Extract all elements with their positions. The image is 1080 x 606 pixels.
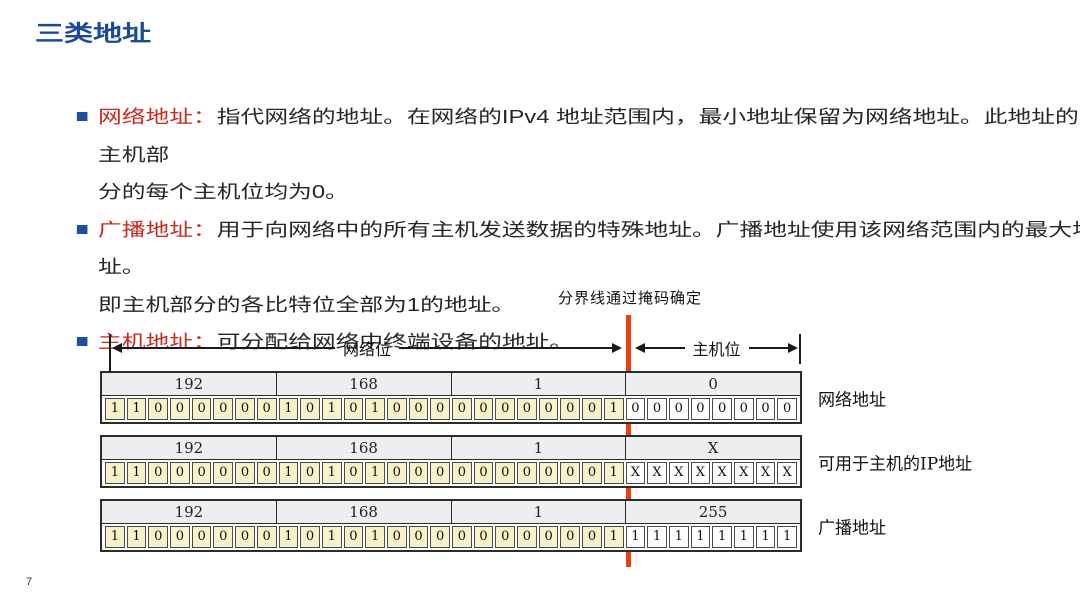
bit-cell: 0 (430, 462, 450, 484)
bit-cell: 0 (344, 462, 364, 484)
bit-cell: 0 (344, 398, 364, 420)
bit-cell: X (734, 462, 754, 484)
octet-value: 1 (452, 437, 627, 459)
address-row: 1921681X110000001010100000000001XXXXXXXX… (100, 435, 802, 488)
bit-cell: 0 (300, 526, 320, 548)
bit-cell: 0 (734, 398, 754, 420)
range-tick-left (109, 334, 111, 372)
arrowhead-left-icon (635, 343, 645, 353)
bit-cell: 0 (560, 526, 580, 548)
bit-cell: 1 (365, 526, 385, 548)
bit-cell: X (756, 462, 776, 484)
bit-cell: 0 (257, 526, 277, 548)
octet-value: 168 (277, 437, 452, 459)
octet-value: 255 (626, 501, 800, 523)
bit-cell: 0 (495, 398, 515, 420)
bit-cell: 0 (517, 398, 537, 420)
bit-cell: 0 (192, 462, 212, 484)
bit-cell: 0 (517, 462, 537, 484)
slide: 三类地址 网络地址：指代网络的地址。在网络的IPv4 地址范围内，最小地址保留为… (0, 0, 1080, 606)
bit-cell: 0 (430, 526, 450, 548)
bit-cell: 1 (105, 398, 125, 420)
bit-cell: 0 (582, 526, 602, 548)
bit-cell: 1 (669, 526, 689, 548)
bit-cell: 1 (365, 462, 385, 484)
bit-cell: 0 (409, 398, 429, 420)
bit-cell: X (669, 462, 689, 484)
host-bits-label: 主机位 (685, 336, 749, 360)
bit-cell: 0 (582, 462, 602, 484)
row-label: 可用于主机的IP地址 (818, 449, 972, 474)
bit-cell: 0 (300, 398, 320, 420)
bit-cell: 1 (322, 462, 342, 484)
bit-cell: 1 (127, 398, 147, 420)
bit-cell: 1 (279, 526, 299, 548)
bit-cell: 1 (626, 526, 646, 548)
address-rows: 1921681011000000101010000000000100000000… (100, 371, 802, 563)
bit-cell: 1 (604, 462, 624, 484)
bit-cell: 0 (539, 526, 559, 548)
address-row: 1921681255110000001010100000000001111111… (100, 499, 802, 552)
bit-cell: 0 (213, 462, 233, 484)
address-row: 1921681011000000101010000000000100000000… (100, 371, 802, 424)
octet-value: 168 (277, 501, 452, 523)
bit-cell: 1 (734, 526, 754, 548)
network-bits-arrow: 网络位 (112, 339, 622, 357)
bullet-term: 网络地址： (98, 107, 217, 127)
bit-cell: 1 (127, 526, 147, 548)
bit-cell: 1 (604, 398, 624, 420)
bullet-square-icon (77, 225, 88, 234)
bit-cell: 0 (192, 398, 212, 420)
bit-cell: 0 (560, 462, 580, 484)
bit-cell: 0 (517, 526, 537, 548)
host-bits-arrow: 主机位 (635, 339, 798, 357)
bit-cell: 0 (474, 398, 494, 420)
bit-cell: 1 (127, 462, 147, 484)
bit-cell: 0 (691, 398, 711, 420)
bit-cell: 0 (213, 398, 233, 420)
bit-cell: 0 (560, 398, 580, 420)
bit-cell: 0 (777, 398, 797, 420)
network-bits-label: 网络位 (335, 336, 399, 360)
octet-value: X (626, 437, 800, 459)
octet-value: 0 (626, 373, 800, 395)
bit-cell: 0 (669, 398, 689, 420)
bit-cell: 1 (756, 526, 776, 548)
bit-cell: 0 (300, 462, 320, 484)
octet-value: 192 (102, 437, 277, 459)
bit-cell: X (777, 462, 797, 484)
bit-cell: 0 (387, 526, 407, 548)
bit-cell: X (626, 462, 646, 484)
bit-cell: 0 (148, 526, 168, 548)
bullet-text: 指代网络的地址。在网络的IPv4 地址范围内，最小地址保留为网络地址。此地址的主… (98, 107, 1079, 202)
bit-cell: X (647, 462, 667, 484)
bit-cell: 0 (452, 462, 472, 484)
page-number: 7 (26, 576, 32, 588)
bullet-list: 网络地址：指代网络的地址。在网络的IPv4 地址范围内，最小地址保留为网络地址。… (98, 99, 1080, 362)
bit-cell: 0 (344, 526, 364, 548)
arrowhead-right-icon (788, 343, 798, 353)
bit-cell: 0 (213, 526, 233, 548)
bit-cell: 1 (322, 526, 342, 548)
bit-cell: 1 (712, 526, 732, 548)
bit-cell: 0 (452, 398, 472, 420)
bit-cell: 0 (235, 526, 255, 548)
bit-cell: 1 (604, 526, 624, 548)
bit-cell: 1 (279, 462, 299, 484)
bullet-square-icon (77, 112, 88, 121)
bit-cell: 0 (257, 398, 277, 420)
bit-cell: 1 (322, 398, 342, 420)
bit-cell: 0 (452, 526, 472, 548)
bit-cell: 0 (192, 526, 212, 548)
bit-cell: 0 (409, 526, 429, 548)
bit-cell: 0 (148, 398, 168, 420)
bit-cell: 0 (474, 462, 494, 484)
page-title: 三类地址 (35, 16, 151, 48)
bit-cell: 0 (430, 398, 450, 420)
bit-cell: 0 (409, 462, 429, 484)
arrowhead-left-icon (112, 343, 122, 353)
bit-cell: 0 (539, 462, 559, 484)
bit-cell: X (712, 462, 732, 484)
bit-cell: 0 (235, 398, 255, 420)
bit-cell: 0 (647, 398, 667, 420)
octet-value: 192 (102, 501, 277, 523)
bit-cell: 1 (691, 526, 711, 548)
bit-cell: 0 (539, 398, 559, 420)
bit-cell: 0 (495, 526, 515, 548)
bit-cell: 0 (257, 462, 277, 484)
octet-value: 1 (452, 501, 627, 523)
bullet-term: 广播地址： (98, 220, 217, 240)
bit-cell: 1 (105, 526, 125, 548)
bit-cell: 0 (170, 526, 190, 548)
bit-cell: 1 (279, 398, 299, 420)
bit-cell: 0 (712, 398, 732, 420)
range-tick-right (799, 334, 801, 364)
bit-cell: 0 (387, 398, 407, 420)
octet-value: 192 (102, 373, 277, 395)
octet-value: 1 (452, 373, 627, 395)
row-label: 广播地址 (818, 513, 886, 538)
bit-cell: 0 (148, 462, 168, 484)
bit-cell: 1 (365, 398, 385, 420)
bit-cell: X (691, 462, 711, 484)
bullet-item: 网络地址：指代网络的地址。在网络的IPv4 地址范围内，最小地址保留为网络地址。… (98, 99, 1080, 212)
bit-cell: 0 (170, 462, 190, 484)
bit-cell: 1 (105, 462, 125, 484)
bit-cell: 0 (474, 526, 494, 548)
bit-cell: 0 (756, 398, 776, 420)
bit-cell: 1 (647, 526, 667, 548)
bit-cell: 0 (235, 462, 255, 484)
bit-cell: 1 (777, 526, 797, 548)
bit-cell: 0 (495, 462, 515, 484)
bit-cell: 0 (170, 398, 190, 420)
bullet-square-icon (77, 337, 88, 346)
bit-cell: 0 (626, 398, 646, 420)
arrowhead-right-icon (612, 343, 622, 353)
row-label: 网络地址 (818, 385, 886, 410)
divider-caption: 分界线通过掩码确定 (558, 287, 702, 308)
octet-value: 168 (277, 373, 452, 395)
bit-cell: 0 (387, 462, 407, 484)
bit-cell: 0 (582, 398, 602, 420)
